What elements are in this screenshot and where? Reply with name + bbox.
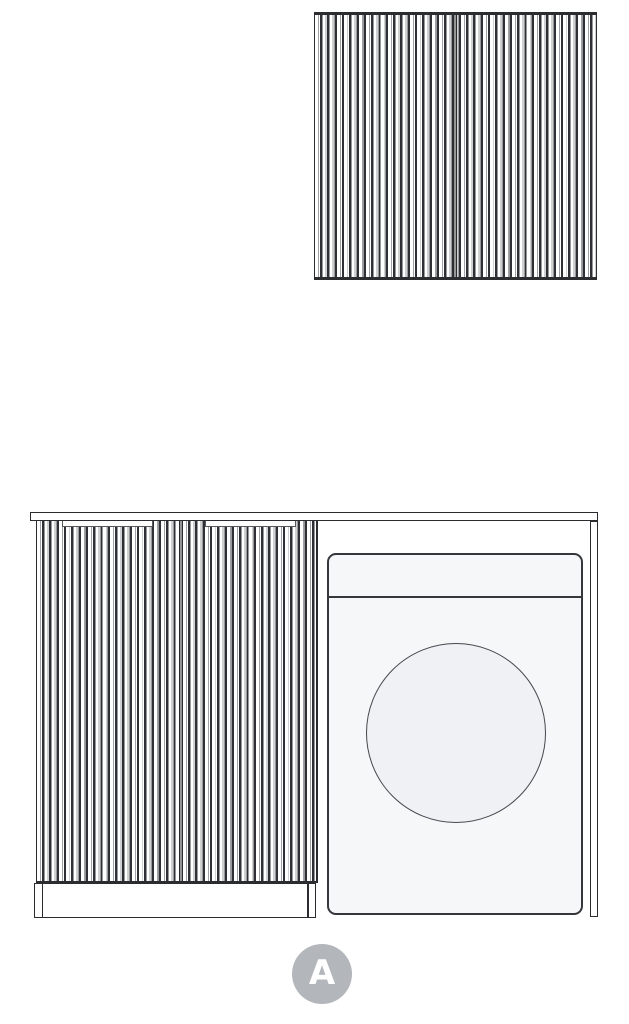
plinth-leg-line-left bbox=[42, 884, 44, 917]
countertop bbox=[30, 512, 598, 521]
base-cabinet-door-divider bbox=[179, 521, 183, 881]
wall-cabinet bbox=[314, 12, 597, 280]
washing-machine bbox=[327, 553, 583, 915]
right-end-panel bbox=[590, 521, 598, 917]
plinth-kickboard bbox=[34, 883, 316, 918]
cabinet-elevation-diagram: A bbox=[0, 0, 629, 1024]
base-cabinet-doors bbox=[36, 521, 318, 883]
washer-door-porthole-icon bbox=[366, 643, 546, 823]
section-label-badge: A bbox=[292, 944, 352, 1004]
washer-control-panel-divider bbox=[329, 596, 581, 598]
door-handle-notch-right bbox=[205, 521, 296, 527]
section-label-text: A bbox=[309, 956, 335, 990]
door-handle-notch-left bbox=[62, 521, 153, 527]
plinth-leg-line-right bbox=[307, 884, 309, 917]
wall-cabinet-door-divider bbox=[453, 15, 457, 277]
